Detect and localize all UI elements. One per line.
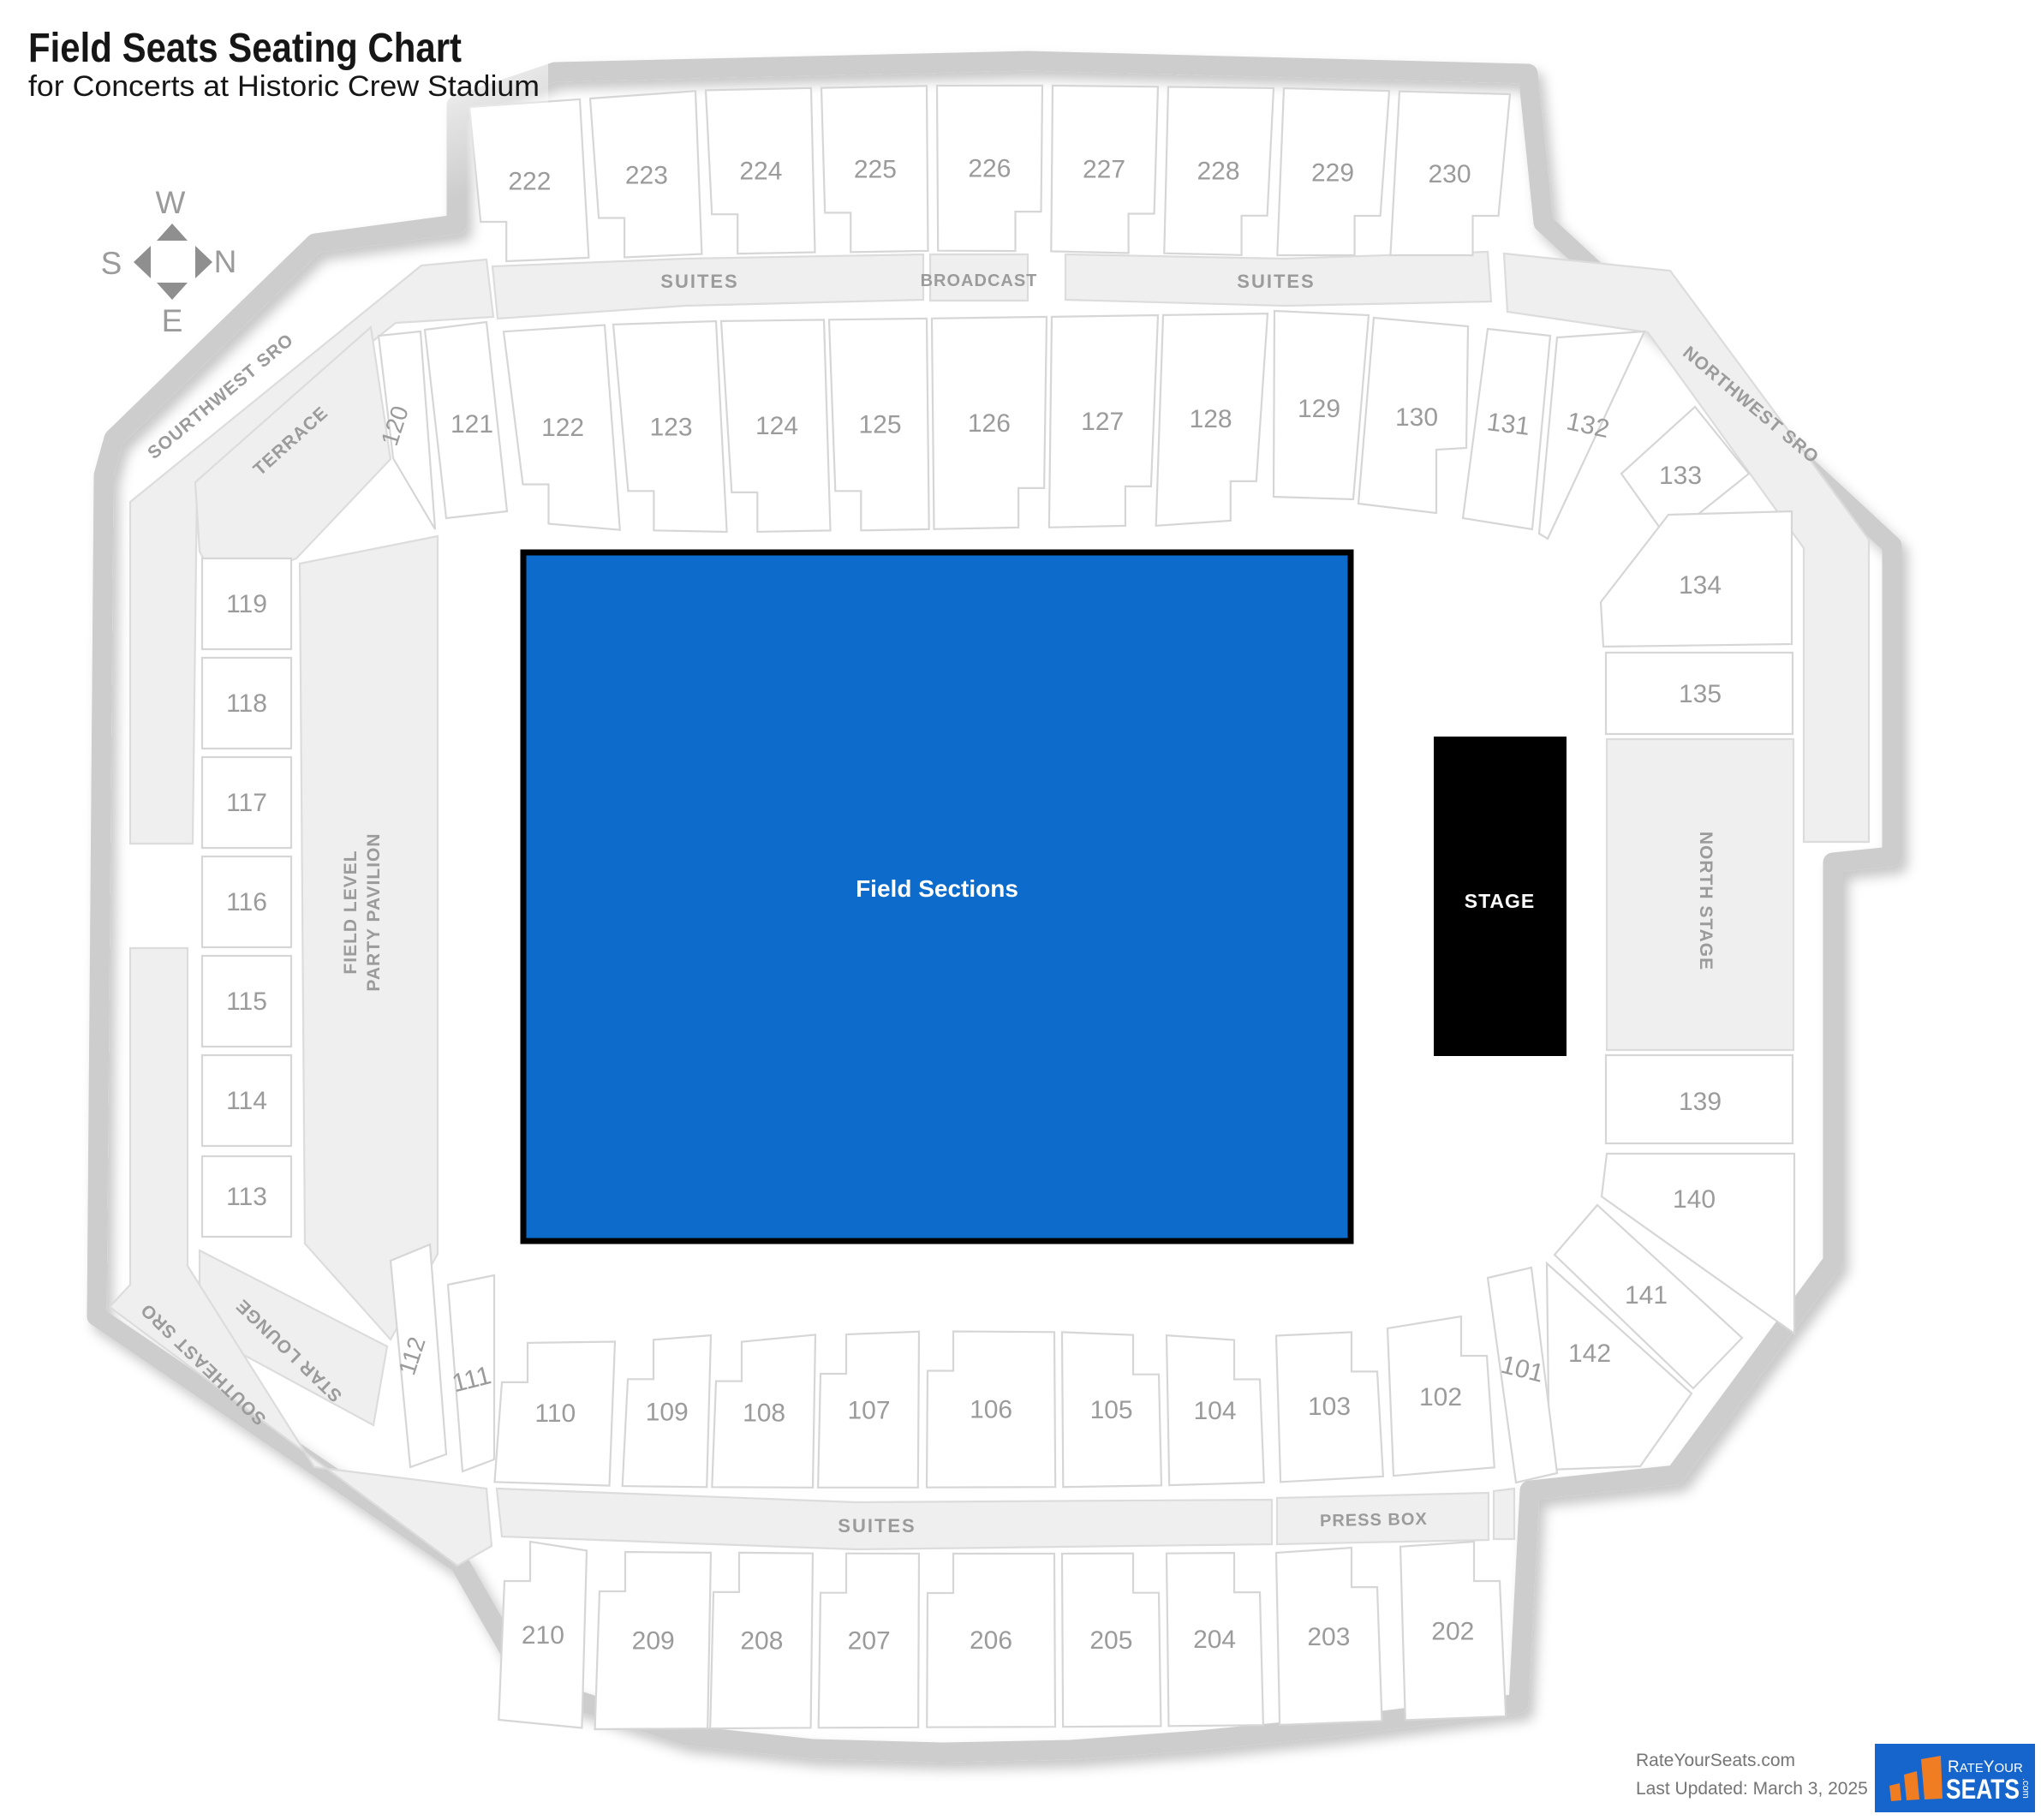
svg-text:FIELD LEVEL: FIELD LEVEL [341, 850, 361, 974]
svg-text:121: 121 [451, 410, 493, 439]
svg-text:Last Updated: March 3, 2025: Last Updated: March 3, 2025 [1636, 1779, 1868, 1799]
svg-text:Field Sections: Field Sections [856, 875, 1018, 902]
svg-text:N: N [214, 244, 237, 279]
svg-text:122: 122 [541, 414, 584, 442]
svg-text:139: 139 [1679, 1088, 1722, 1116]
svg-text:BROADCAST: BROADCAST [921, 272, 1038, 290]
svg-text:203: 203 [1307, 1623, 1350, 1651]
svg-text:141: 141 [1625, 1281, 1668, 1310]
svg-text:for Concerts at Historic Crew: for Concerts at Historic Crew Stadium [28, 70, 540, 103]
svg-text:126: 126 [968, 409, 1011, 438]
svg-text:.com: .com [2020, 1778, 2031, 1799]
svg-text:SEATS: SEATS [1946, 1774, 2020, 1805]
svg-text:103: 103 [1308, 1393, 1351, 1421]
svg-text:128: 128 [1190, 405, 1232, 433]
svg-text:115: 115 [226, 988, 267, 1016]
svg-text:134: 134 [1679, 571, 1722, 600]
svg-text:124: 124 [755, 412, 798, 440]
svg-text:117: 117 [226, 789, 267, 817]
svg-text:110: 110 [534, 1399, 576, 1428]
svg-text:104: 104 [1193, 1397, 1236, 1425]
svg-text:SUITES: SUITES [838, 1515, 916, 1537]
svg-text:Field Seats Seating Chart: Field Seats Seating Chart [28, 26, 462, 71]
svg-text:118: 118 [226, 689, 267, 718]
svg-text:107: 107 [847, 1397, 890, 1425]
svg-text:207: 207 [848, 1626, 891, 1655]
svg-text:106: 106 [970, 1396, 1012, 1424]
svg-text:SUITES: SUITES [660, 271, 738, 292]
svg-text:108: 108 [743, 1399, 785, 1428]
svg-text:206: 206 [970, 1626, 1012, 1655]
svg-text:130: 130 [1395, 403, 1438, 432]
svg-text:105: 105 [1090, 1396, 1133, 1424]
svg-text:NORTH STAGE: NORTH STAGE [1696, 832, 1716, 970]
svg-text:114: 114 [226, 1087, 267, 1115]
svg-text:133: 133 [1659, 462, 1702, 490]
svg-text:204: 204 [1193, 1626, 1236, 1654]
svg-text:210: 210 [522, 1621, 564, 1650]
svg-text:PRESS BOX: PRESS BOX [1320, 1510, 1428, 1531]
svg-text:230: 230 [1428, 160, 1471, 188]
svg-text:125: 125 [858, 411, 901, 439]
svg-text:129: 129 [1298, 395, 1340, 423]
svg-text:STAGE: STAGE [1465, 890, 1536, 912]
svg-text:131: 131 [1485, 408, 1531, 441]
svg-text:E: E [162, 303, 183, 338]
svg-text:W: W [156, 185, 186, 220]
svg-text:226: 226 [968, 154, 1011, 182]
svg-text:135: 135 [1679, 680, 1722, 708]
svg-text:225: 225 [854, 156, 897, 184]
svg-text:142: 142 [1568, 1340, 1611, 1368]
svg-text:227: 227 [1083, 156, 1125, 184]
svg-text:102: 102 [1419, 1383, 1462, 1411]
svg-text:SUITES: SUITES [1237, 271, 1315, 292]
svg-text:127: 127 [1081, 408, 1124, 436]
svg-text:PARTY PAVILION: PARTY PAVILION [364, 832, 384, 991]
svg-text:119: 119 [226, 590, 267, 618]
svg-text:205: 205 [1089, 1626, 1132, 1655]
svg-text:202: 202 [1431, 1618, 1474, 1646]
svg-text:209: 209 [632, 1627, 675, 1656]
svg-text:S: S [101, 246, 122, 281]
svg-text:208: 208 [740, 1627, 783, 1656]
svg-text:224: 224 [739, 158, 782, 186]
svg-text:116: 116 [226, 888, 267, 916]
svg-text:140: 140 [1673, 1185, 1716, 1214]
svg-text:223: 223 [625, 162, 668, 190]
svg-text:229: 229 [1311, 158, 1354, 187]
svg-text:RateYourSeats.com: RateYourSeats.com [1636, 1751, 1795, 1770]
svg-text:109: 109 [646, 1399, 689, 1427]
svg-text:228: 228 [1197, 157, 1239, 185]
svg-text:113: 113 [226, 1183, 267, 1211]
svg-text:123: 123 [649, 414, 692, 442]
